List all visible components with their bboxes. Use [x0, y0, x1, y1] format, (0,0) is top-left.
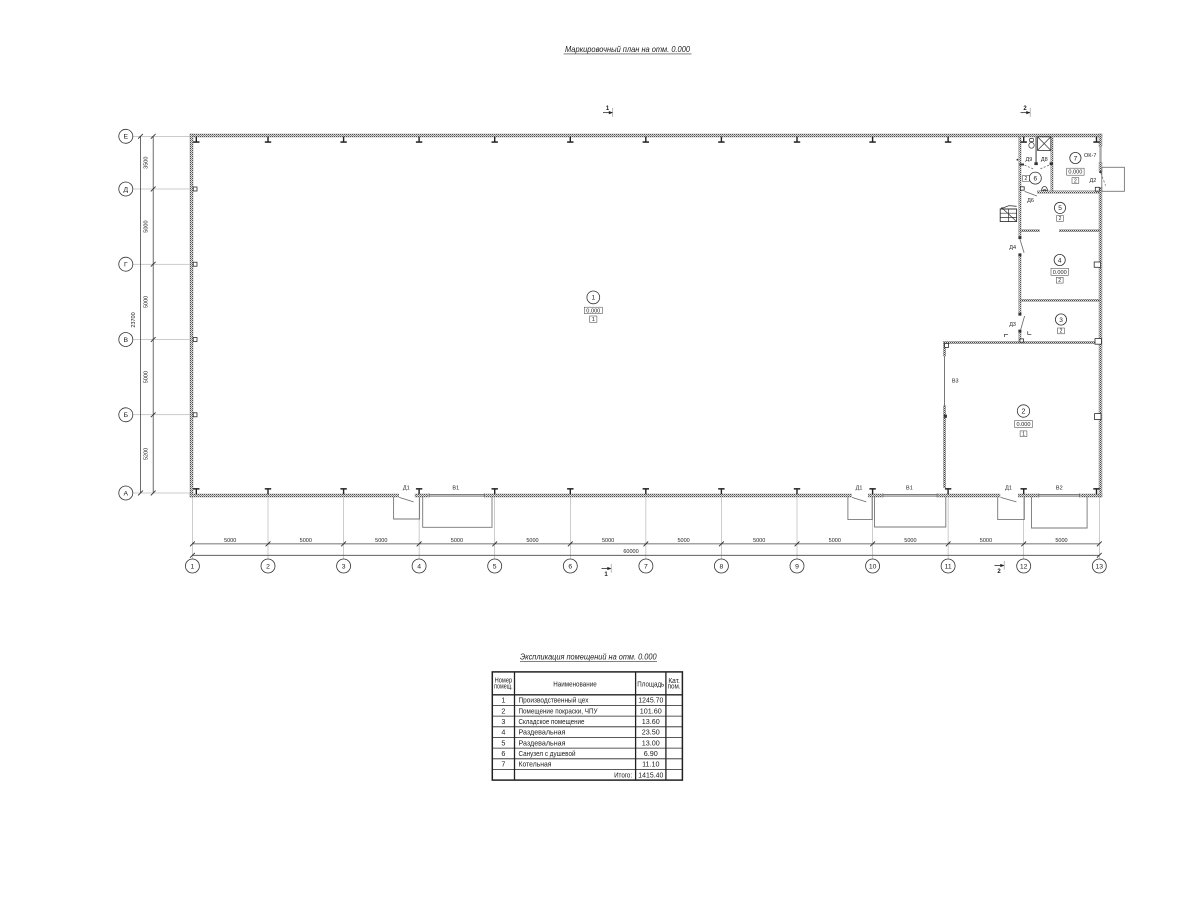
svg-text:В3: В3: [952, 379, 959, 385]
svg-text:5000: 5000: [144, 371, 150, 383]
svg-text:Котельная: Котельная: [519, 760, 552, 769]
svg-text:В: В: [124, 337, 129, 344]
svg-text:9: 9: [795, 563, 799, 570]
svg-text:5000: 5000: [1055, 538, 1067, 544]
svg-text:2: 2: [1059, 216, 1062, 222]
svg-text:5000: 5000: [829, 538, 841, 544]
svg-text:Производственный цех: Производственный цех: [519, 696, 589, 705]
svg-text:0.000: 0.000: [586, 308, 600, 314]
svg-text:7: 7: [501, 760, 505, 769]
svg-text:6: 6: [568, 563, 572, 570]
svg-text:1: 1: [592, 317, 595, 323]
svg-text:2: 2: [266, 563, 270, 570]
svg-text:101.60: 101.60: [640, 706, 662, 715]
svg-text:12: 12: [1020, 563, 1028, 570]
svg-text:5200: 5200: [144, 448, 150, 460]
svg-text:0.000: 0.000: [1053, 270, 1067, 276]
svg-text:1415.40: 1415.40: [638, 770, 663, 779]
svg-text:В1: В1: [906, 486, 913, 492]
svg-text:2: 2: [1060, 329, 1063, 335]
svg-text:4: 4: [501, 728, 505, 737]
svg-text:3: 3: [342, 563, 346, 570]
svg-text:1: 1: [191, 563, 195, 570]
svg-text:8: 8: [720, 563, 724, 570]
svg-text:1245.70: 1245.70: [638, 696, 663, 705]
svg-text:7: 7: [644, 563, 648, 570]
svg-text:1: 1: [501, 696, 505, 705]
svg-text:Е: Е: [124, 134, 129, 141]
svg-text:2: 2: [1058, 278, 1061, 284]
svg-text:10: 10: [869, 563, 877, 570]
svg-text:11: 11: [945, 563, 952, 570]
svg-text:Складское помещение: Складское помещение: [519, 717, 585, 726]
svg-text:Д1: Д1: [403, 486, 410, 492]
svg-text:5000: 5000: [375, 538, 387, 544]
svg-text:1: 1: [591, 295, 595, 302]
svg-text:А: А: [124, 490, 129, 497]
svg-text:5000: 5000: [526, 538, 538, 544]
svg-text:2: 2: [1022, 409, 1026, 416]
svg-text:2: 2: [501, 706, 505, 715]
svg-text:5000: 5000: [451, 538, 463, 544]
svg-text:Санузел с душевой: Санузел с душевой: [519, 749, 576, 758]
svg-text:2: 2: [1074, 178, 1077, 184]
svg-text:Д9: Д9: [1026, 157, 1033, 163]
svg-text:5000: 5000: [753, 538, 765, 544]
svg-text:Площадь: Площадь: [637, 680, 664, 689]
svg-text:2: 2: [1025, 176, 1028, 182]
svg-text:23700: 23700: [131, 312, 137, 327]
svg-text:60000: 60000: [623, 549, 638, 555]
svg-text:Раздевальная: Раздевальная: [519, 738, 566, 747]
svg-text:6: 6: [1033, 175, 1037, 182]
svg-text:6.90: 6.90: [644, 749, 658, 758]
svg-text:Д8: Д8: [1041, 157, 1048, 163]
svg-text:5000: 5000: [677, 538, 689, 544]
svg-text:В1: В1: [452, 486, 459, 492]
svg-text:13: 13: [1096, 563, 1104, 570]
svg-text:Д1: Д1: [1005, 486, 1012, 492]
svg-text:Д: Д: [123, 186, 128, 193]
svg-text:1: 1: [1022, 432, 1025, 438]
svg-text:3: 3: [1059, 317, 1063, 324]
svg-text:5: 5: [1058, 205, 1062, 212]
svg-text:5: 5: [501, 738, 505, 747]
svg-text:13.60: 13.60: [642, 717, 660, 726]
svg-text:Б: Б: [124, 412, 129, 419]
svg-text:4: 4: [417, 563, 421, 570]
svg-text:0.000: 0.000: [1017, 422, 1031, 428]
svg-text:7: 7: [1074, 155, 1078, 162]
svg-text:Д3: Д3: [1009, 322, 1016, 328]
svg-text:11.10: 11.10: [642, 760, 659, 769]
svg-text:Итого:: Итого:: [614, 770, 632, 779]
svg-text:5000: 5000: [300, 538, 312, 544]
svg-text:Маркировочный план на отм. 0.0: Маркировочный план на отм. 0.000: [565, 45, 690, 54]
svg-text:Экспликация помещений на отм.: Экспликация помещений на отм. 0.000: [520, 651, 657, 661]
svg-text:3: 3: [501, 717, 505, 726]
svg-text:5000: 5000: [904, 538, 916, 544]
svg-text:5000: 5000: [980, 538, 992, 544]
svg-text:5000: 5000: [144, 220, 150, 232]
svg-text:Помещение покраски, ЧПУ: Помещение покраски, ЧПУ: [519, 706, 598, 715]
svg-text:Раздевальная: Раздевальная: [519, 728, 566, 737]
svg-text:Д2: Д2: [1090, 178, 1097, 184]
svg-text:Д1: Д1: [856, 486, 863, 492]
svg-text:Наименование: Наименование: [553, 680, 597, 689]
svg-text:3500: 3500: [144, 157, 150, 169]
svg-text:Д6: Д6: [1027, 198, 1034, 204]
svg-text:пом.: пом.: [668, 684, 681, 691]
svg-text:5000: 5000: [602, 538, 614, 544]
svg-text:5000: 5000: [144, 296, 150, 308]
svg-text:В2: В2: [1056, 486, 1063, 492]
svg-text:Д4: Д4: [1009, 245, 1016, 251]
svg-text:5000: 5000: [224, 538, 236, 544]
svg-text:помещ.: помещ.: [494, 683, 513, 690]
svg-text:0.000: 0.000: [1068, 170, 1082, 176]
svg-text:23.50: 23.50: [642, 728, 660, 737]
svg-text:5: 5: [493, 563, 497, 570]
svg-text:ОК-7: ОК-7: [1084, 153, 1096, 159]
svg-text:4: 4: [1058, 257, 1062, 264]
svg-text:13.00: 13.00: [642, 738, 660, 747]
svg-text:6: 6: [501, 749, 505, 758]
svg-text:Г: Г: [124, 262, 128, 269]
